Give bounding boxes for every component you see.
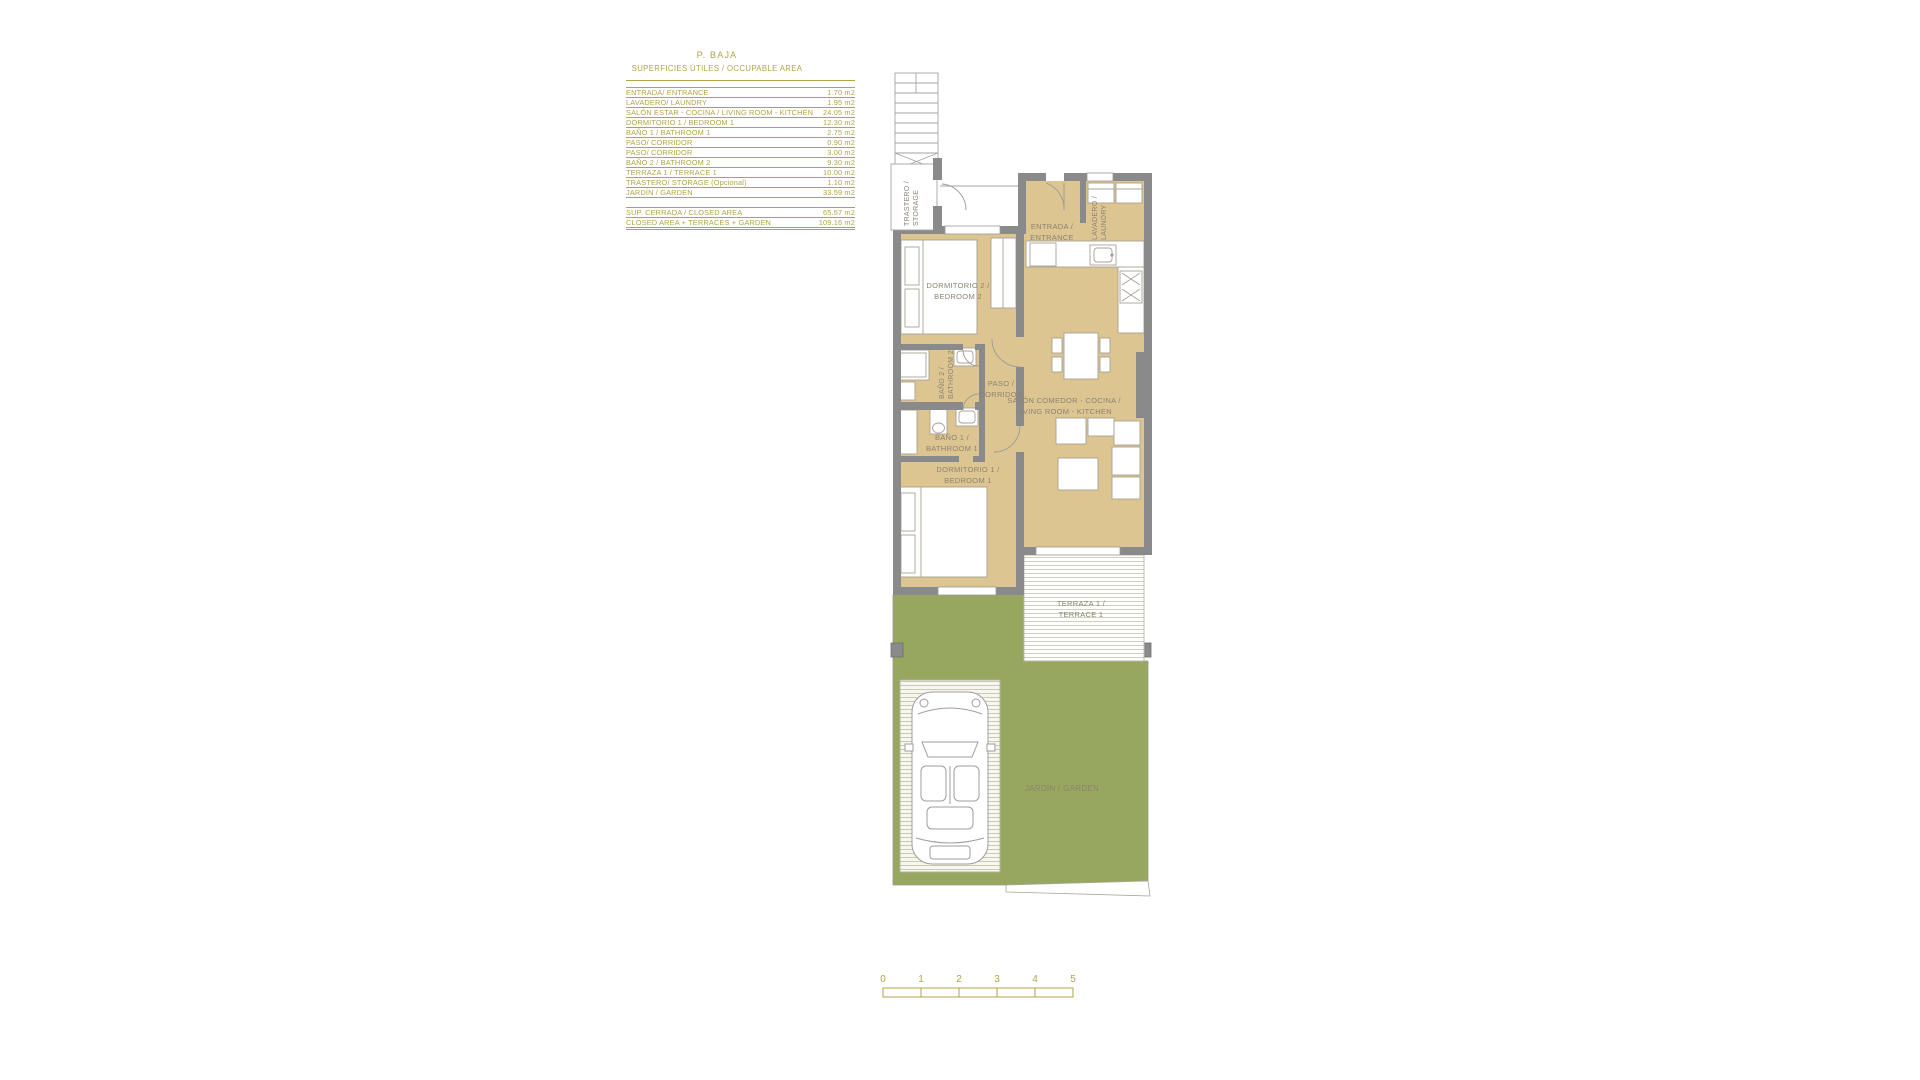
row-label: TRASTERO/ STORAGE (Opcional) (626, 178, 747, 187)
svg-text:BEDROOM 2: BEDROOM 2 (934, 292, 982, 301)
svg-text:SALÓN COMEDOR - COCINA /: SALÓN COMEDOR - COCINA / (1007, 396, 1121, 405)
stairs-icon (895, 73, 938, 170)
svg-text:BATHROOM 1: BATHROOM 1 (926, 444, 978, 453)
svg-text:0: 0 (880, 974, 886, 985)
row-label: DORMITORIO 1 / BEDROOM 1 (626, 118, 734, 127)
table-row: PASO/ CORRIDOR 3.00 m2 (626, 148, 855, 158)
row-value: 10.00 m2 (823, 168, 855, 177)
svg-text:BAÑO 1 /: BAÑO 1 / (935, 433, 970, 442)
area-table: P. BAJA SUPERFICIES ÚTILES / OCCUPABLE A… (626, 50, 855, 230)
svg-text:BATHROOM 2: BATHROOM 2 (948, 350, 955, 399)
row-value: 9.30 m2 (827, 158, 855, 167)
svg-text:LIVING ROOM - KITCHEN: LIVING ROOM - KITCHEN (1016, 407, 1112, 416)
sink-icon (956, 408, 978, 426)
svg-text:PASO /: PASO / (988, 379, 1015, 388)
svg-text:DORMITORIO 2 /: DORMITORIO 2 / (926, 281, 990, 290)
terrace-label-line1: TERRAZA 1 / (1057, 599, 1106, 608)
table-row: LAVADERO/ LAUNDRY 1.95 m2 (626, 98, 855, 108)
door-storage (942, 184, 966, 210)
terrace-label-line2: TERRACE 1 (1059, 610, 1104, 619)
row-label: PASO/ CORRIDOR (626, 148, 692, 157)
svg-text:1: 1 (918, 974, 924, 985)
svg-text:4: 4 (1032, 974, 1038, 985)
row-value: 12.30 m2 (823, 118, 855, 127)
stove-icon (1120, 271, 1142, 303)
terrace-area: TERRAZA 1 / TERRACE 1 (1024, 555, 1144, 661)
svg-text:BAÑO 2 /: BAÑO 2 / (937, 367, 946, 399)
table-row: DORMITORIO 1 / BEDROOM 1 12.30 m2 (626, 118, 855, 128)
area-table-summary: SUP. CERRADA / CLOSED AREA 65.57 m2 CLOS… (626, 207, 855, 230)
table-row: PASO/ CORRIDOR 0.90 m2 (626, 138, 855, 148)
row-value: 1.70 m2 (827, 88, 855, 97)
garden-label: JARDÍN / GARDEN (1025, 784, 1099, 793)
row-value: 1.10 m2 (827, 178, 855, 187)
area-table-subtitle: SUPERFICIES ÚTILES / OCCUPABLE AREA (626, 64, 808, 73)
svg-text:ENTRADA /: ENTRADA / (1031, 222, 1074, 231)
slider-terrace (1036, 547, 1120, 555)
row-value: 24.05 m2 (823, 108, 855, 117)
bed-bedroom1 (897, 487, 987, 577)
row-label: BAÑO 2 / BATHROOM 2 (626, 158, 710, 167)
svg-text:LAUNDRY: LAUNDRY (1101, 205, 1108, 240)
coffee-table (1058, 458, 1098, 490)
row-label: BAÑO 1 / BATHROOM 1 (626, 128, 710, 137)
plan-level-title: P. BAJA (626, 50, 808, 60)
svg-text:BEDROOM 1: BEDROOM 1 (944, 476, 992, 485)
summary-row-closed-area: SUP. CERRADA / CLOSED AREA 65.57 m2 (626, 208, 855, 218)
scale-bar: 0 1 2 3 4 5 (880, 974, 1076, 997)
row-value: 1.95 m2 (827, 98, 855, 107)
svg-text:DORMITORIO 1 /: DORMITORIO 1 / (936, 465, 1000, 474)
row-label: SUP. CERRADA / CLOSED AREA (626, 208, 742, 217)
svg-text:LAVADERO /: LAVADERO / (1092, 196, 1099, 240)
row-label: ENTRADA/ ENTRANCE (626, 88, 709, 97)
boundary-post-left (891, 643, 903, 657)
window-bedroom1 (938, 587, 996, 595)
row-label: PASO/ CORRIDOR (626, 138, 692, 147)
row-value: 65.57 m2 (823, 208, 855, 217)
svg-text:3: 3 (994, 974, 1000, 985)
svg-text:STORAGE: STORAGE (913, 190, 920, 226)
row-label: SALÓN ESTAR - COCINA / LIVING ROOM - KIT… (626, 108, 813, 117)
table-row: TRASTERO/ STORAGE (Opcional) 1.10 m2 (626, 178, 855, 188)
table-row: TERRAZA 1 / TERRACE 1 10.00 m2 (626, 168, 855, 178)
floorplan-page: P. BAJA SUPERFICIES ÚTILES / OCCUPABLE A… (0, 0, 1920, 1080)
sink-icon (1090, 245, 1116, 265)
row-value: 2.75 m2 (827, 128, 855, 137)
wardrobe-bedroom2 (991, 238, 1016, 308)
svg-text:5: 5 (1070, 974, 1076, 985)
svg-text:TRASTERO /: TRASTERO / (904, 181, 911, 226)
table-row: SALÓN ESTAR - COCINA / LIVING ROOM - KIT… (626, 108, 855, 118)
row-label: JARDÍN / GARDEN (626, 188, 693, 197)
summary-row-total-area: CLOSED AREA + TERRACES + GARDEN 109.16 m… (626, 218, 855, 228)
row-value: 109.16 m2 (819, 218, 855, 227)
floor-plan-drawing: JARDÍN / GARDEN TERRAZA 1 / TERRACE 1 (880, 55, 1180, 1015)
area-table-rows: ENTRADA/ ENTRANCE 1.70 m2 LAVADERO/ LAUN… (626, 87, 855, 198)
window-laundry (1087, 173, 1113, 181)
row-label: CLOSED AREA + TERRACES + GARDEN (626, 218, 771, 227)
parking-pad (900, 680, 1000, 872)
svg-text:2: 2 (956, 974, 962, 985)
sofa-set (1056, 418, 1140, 499)
row-value: 33.59 m2 (823, 188, 855, 197)
row-value: 0.90 m2 (827, 138, 855, 147)
table-row: ENTRADA/ ENTRANCE 1.70 m2 (626, 88, 855, 98)
row-label: LAVADERO/ LAUNDRY (626, 98, 707, 107)
table-row: BAÑO 1 / BATHROOM 1 2.75 m2 (626, 128, 855, 138)
row-value: 3.00 m2 (827, 148, 855, 157)
table-row: BAÑO 2 / BATHROOM 2 9.30 m2 (626, 158, 855, 168)
fridge-icon (1030, 243, 1056, 266)
table-row: JARDÍN / GARDEN 33.59 m2 (626, 188, 855, 198)
row-label: TERRAZA 1 / TERRACE 1 (626, 168, 717, 177)
window-bedroom2 (945, 226, 1000, 234)
car-top-view (905, 692, 995, 864)
table-divider (626, 80, 855, 81)
area-table-header: P. BAJA SUPERFICIES ÚTILES / OCCUPABLE A… (626, 50, 808, 73)
svg-text:ENTRANCE: ENTRANCE (1030, 233, 1074, 242)
